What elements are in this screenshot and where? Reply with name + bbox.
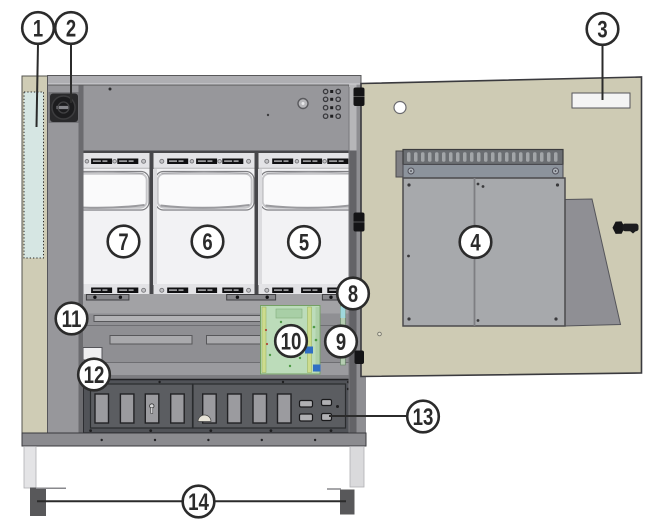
svg-text:2: 2 xyxy=(66,15,76,42)
svg-text:5: 5 xyxy=(299,229,309,256)
svg-text:6: 6 xyxy=(202,229,212,256)
svg-text:14: 14 xyxy=(188,489,209,516)
svg-text:8: 8 xyxy=(348,281,358,308)
svg-text:13: 13 xyxy=(413,404,434,431)
svg-text:3: 3 xyxy=(597,16,607,43)
svg-text:12: 12 xyxy=(84,362,105,389)
svg-text:9: 9 xyxy=(336,329,346,356)
svg-text:4: 4 xyxy=(470,229,480,256)
svg-text:11: 11 xyxy=(62,306,82,333)
svg-text:10: 10 xyxy=(281,328,302,355)
svg-text:7: 7 xyxy=(118,229,128,256)
svg-text:1: 1 xyxy=(33,15,43,42)
